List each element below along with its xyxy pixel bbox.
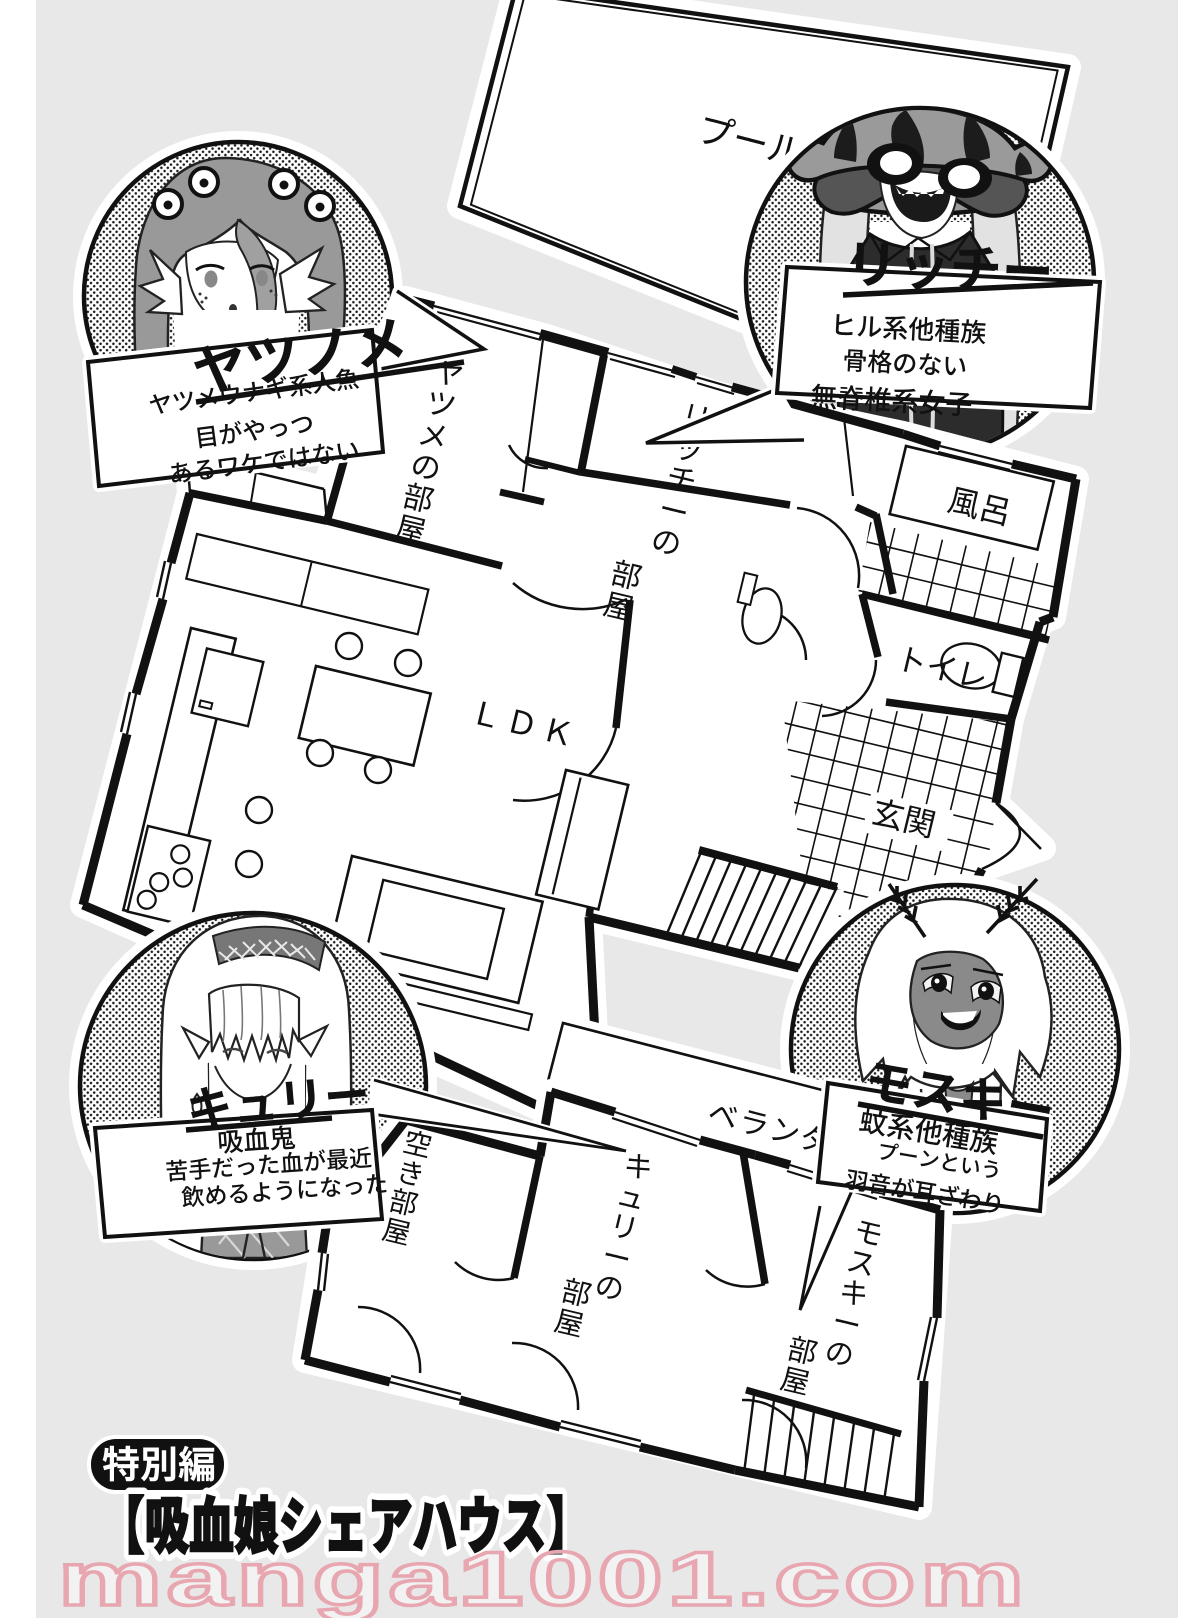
svg-text:manga1001.com: manga1001.com [58,1536,1029,1618]
